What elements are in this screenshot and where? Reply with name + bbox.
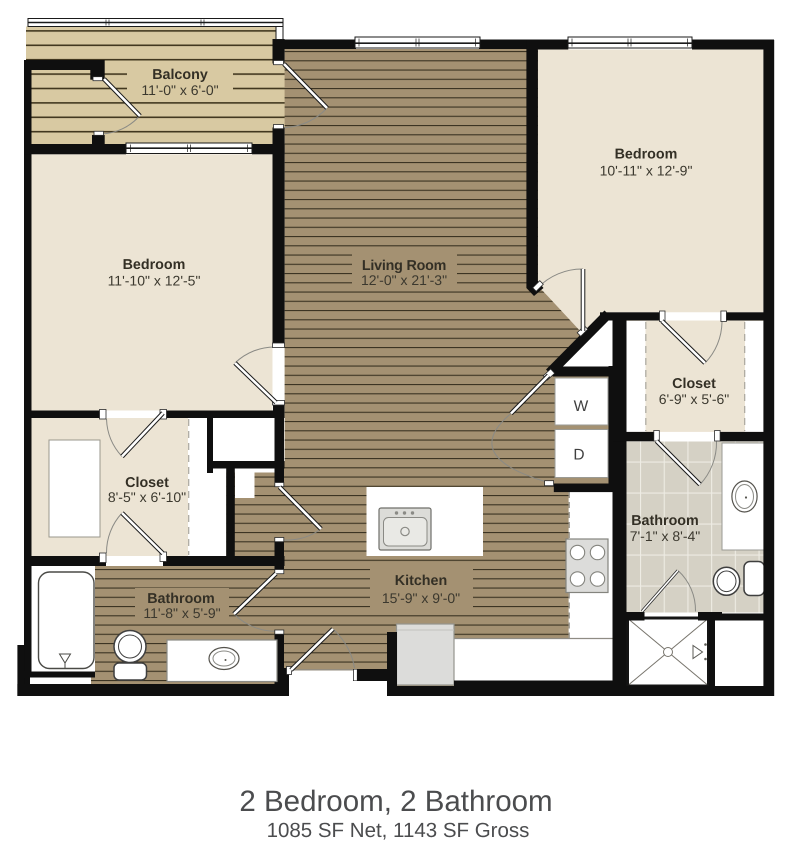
svg-text:Kitchen: Kitchen bbox=[395, 573, 447, 589]
svg-text:7'-1" x 8'-4": 7'-1" x 8'-4" bbox=[630, 528, 701, 544]
svg-text:D: D bbox=[573, 447, 584, 464]
svg-text:Bathroom: Bathroom bbox=[631, 513, 699, 529]
svg-text:1085 SF Net, 1143 SF Gross: 1085 SF Net, 1143 SF Gross bbox=[267, 819, 530, 842]
svg-text:11'-10" x 12'-5": 11'-10" x 12'-5" bbox=[108, 273, 201, 289]
svg-text:Bedroom: Bedroom bbox=[123, 257, 186, 273]
svg-text:10'-11" x 12'-9": 10'-11" x 12'-9" bbox=[600, 163, 693, 179]
svg-text:8'-5" x 6'-10": 8'-5" x 6'-10" bbox=[108, 489, 186, 505]
svg-text:W: W bbox=[574, 398, 589, 415]
svg-text:6'-9" x 5'-6": 6'-9" x 5'-6" bbox=[659, 391, 730, 407]
svg-text:15'-9" x 9'-0": 15'-9" x 9'-0" bbox=[382, 590, 460, 606]
svg-text:Closet: Closet bbox=[672, 376, 716, 392]
svg-text:2 Bedroom, 2 Bathroom: 2 Bedroom, 2 Bathroom bbox=[239, 785, 552, 818]
svg-text:Bedroom: Bedroom bbox=[615, 147, 678, 163]
svg-text:Balcony: Balcony bbox=[152, 67, 208, 83]
svg-text:11'-0" x 6'-0": 11'-0" x 6'-0" bbox=[141, 82, 218, 98]
svg-text:11'-8" x 5'-9": 11'-8" x 5'-9" bbox=[143, 605, 220, 621]
svg-text:12'-0" x 21'-3": 12'-0" x 21'-3" bbox=[361, 272, 447, 288]
